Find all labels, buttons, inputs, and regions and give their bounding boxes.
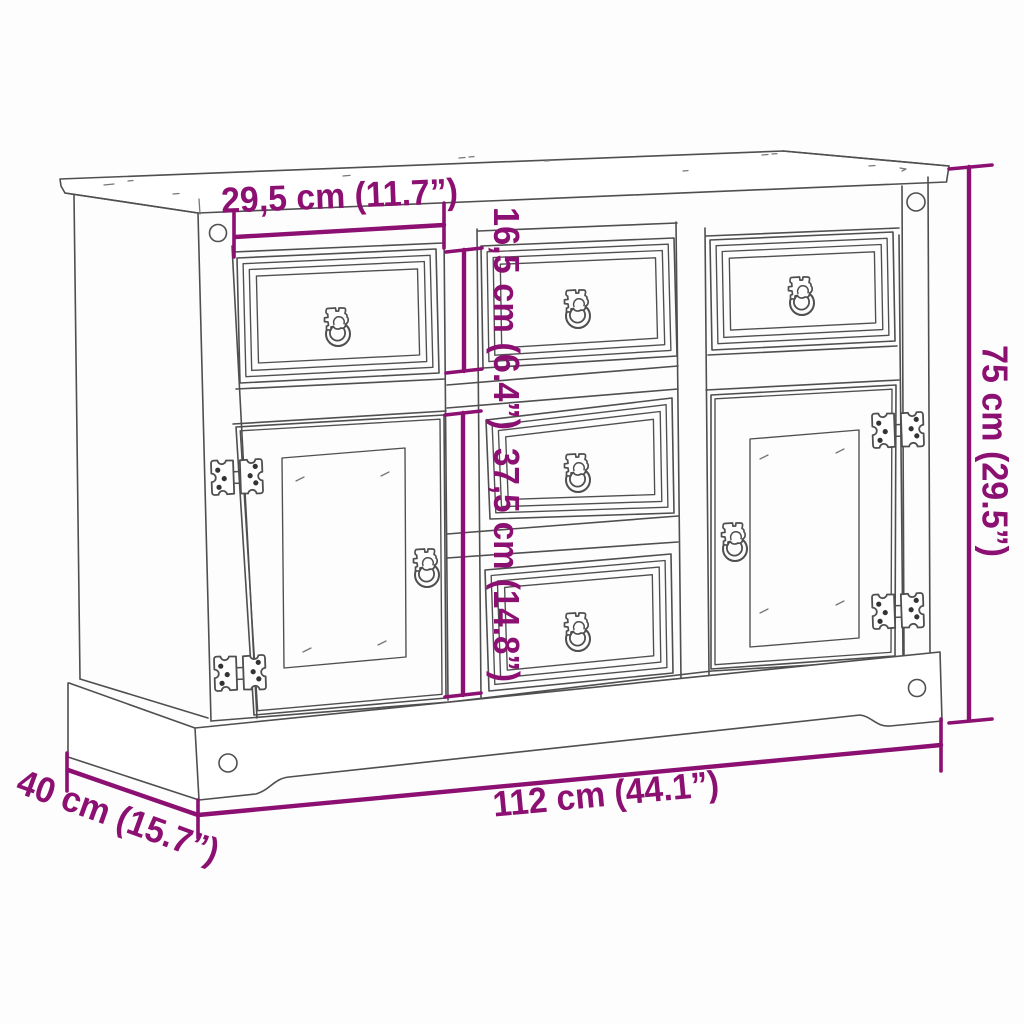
svg-text:75 cm (29.5”): 75 cm (29.5”) bbox=[975, 345, 1016, 557]
svg-text:16,5 cm (6.4”): 16,5 cm (6.4”) bbox=[486, 207, 527, 430]
svg-text:37,5 cm (14.8”): 37,5 cm (14.8”) bbox=[486, 448, 527, 682]
